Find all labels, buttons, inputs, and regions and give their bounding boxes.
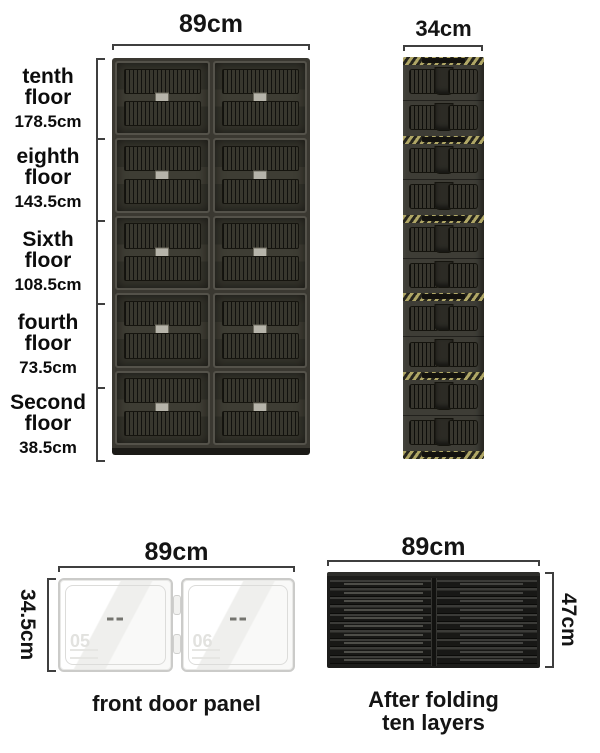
vent-grid [222,101,299,126]
flat-caption: After folding ten layers [327,688,540,734]
vent-grid [448,148,478,173]
door-caption: front door panel [40,692,313,715]
floor-name: fourth [18,312,79,333]
folded-layer [403,223,484,258]
vent-grid [222,301,299,326]
flat-caption-line1: After folding [327,688,540,711]
flat-width-label: 89cm [327,533,540,562]
hinge-tab [173,634,181,654]
folded-layer [403,179,484,215]
floor-label-second: Second floor 38.5cm [2,387,94,462]
cabinet-box [115,293,210,367]
center-divider [431,578,437,666]
vent-grid [448,227,478,252]
door-panel-left: 05 [58,578,173,672]
floor-name: floor [25,167,72,188]
vent-grid [124,179,201,204]
flat-height-label: 47cm [554,574,582,666]
cabinet-box [115,138,210,212]
folded-stack-body [403,57,484,459]
floor-name: Sixth [22,229,73,250]
vent-grid [222,411,299,436]
vent-grid [124,69,201,94]
floor-name: Second [10,392,86,413]
vent-grid [448,420,478,445]
cabinet-width-dimension-line [112,44,310,50]
door-watermark: 06 [192,632,212,650]
floor-label-eighth: eighth floor 143.5cm [2,138,94,220]
door-height-label: 34.5cm [12,576,42,674]
door-watermark-lines [70,649,98,659]
door-watermark-lines [192,649,220,659]
vent-grid [124,223,201,248]
flat-height-dimension-line [545,572,554,668]
cabinet-box [213,216,308,290]
floor-scale-bracket [96,58,105,462]
vent-grid [222,378,299,403]
cabinet-box [213,61,308,135]
flat-width-dimension-line [327,560,540,566]
folded-layer [403,65,484,100]
cabinet-box [115,371,210,445]
floor-height: 38.5cm [19,438,77,458]
cabinet-grid [112,58,310,455]
floor-label-tenth: tenth floor 178.5cm [2,60,94,138]
floor-name: eighth [17,146,80,167]
vent-grid [448,69,478,94]
stack-width-dimension-line [403,45,483,51]
floor-height: 143.5cm [14,192,81,212]
cabinet-box [213,138,308,212]
vent-grid [448,184,478,209]
folded-layer [403,301,484,336]
floor-height: 108.5cm [14,275,81,295]
floor-label-fourth: fourth floor 73.5cm [2,303,94,387]
product-dimension-diagram: 89cm tenth floor 178.5cm eighth floor 14… [0,0,600,753]
folded-layer [403,100,484,136]
hazard-stripe [403,451,484,459]
vent-grid [222,333,299,358]
cabinet-box [115,216,210,290]
folded-layer [403,380,484,415]
vent-grid [448,105,478,130]
vent-grid [448,384,478,409]
door-width-label: 89cm [58,538,295,567]
front-door-panels: 05 06 [58,578,295,672]
vent-grid [222,69,299,94]
floor-name: floor [25,250,72,271]
cabinet-box [115,61,210,135]
floor-name: floor [25,87,72,108]
vent-grid [124,411,201,436]
folded-layer [403,258,484,294]
vent-grid [124,101,201,126]
vent-grid [222,146,299,171]
vent-grid [448,263,478,288]
hazard-stripe [403,57,484,65]
door-width-dimension-line [58,566,295,572]
door-panel-right: 06 [181,578,296,672]
door-handle [230,617,246,620]
floor-name: floor [25,413,72,434]
folded-layer [403,336,484,372]
hazard-stripe [403,372,484,380]
door-height-dimension-line [47,578,56,672]
flat-stack-body [327,572,540,668]
vent-grid [448,306,478,331]
hinge-tab [173,595,181,615]
floor-height: 178.5cm [14,112,81,132]
folded-layer [403,144,484,179]
door-watermark: 05 [70,632,90,650]
vent-grid [124,256,201,281]
vent-grid [222,179,299,204]
cabinet-box [213,293,308,367]
door-hinge-connector [173,578,181,672]
hazard-stripe [403,215,484,223]
vent-grid [222,223,299,248]
floor-height: 73.5cm [19,358,77,378]
floor-name: tenth [22,66,73,87]
hazard-stripe [403,293,484,301]
vent-grid [124,333,201,358]
floor-name: floor [25,333,72,354]
stack-width-label: 34cm [403,16,484,42]
cabinet-box [213,371,308,445]
door-handle [107,617,123,620]
vent-grid [124,146,201,171]
vent-grid [222,256,299,281]
floor-label-sixth: Sixth floor 108.5cm [2,220,94,303]
vent-grid [124,301,201,326]
flat-caption-line2: ten layers [327,711,540,734]
vent-grid [448,342,478,367]
floor-tick [98,303,105,305]
vent-grid [124,378,201,403]
cabinet-width-label: 89cm [112,10,310,39]
floor-tick [98,220,105,222]
folded-layer [403,415,484,451]
floor-tick [98,387,105,389]
floor-tick [98,138,105,140]
hazard-stripe [403,136,484,144]
